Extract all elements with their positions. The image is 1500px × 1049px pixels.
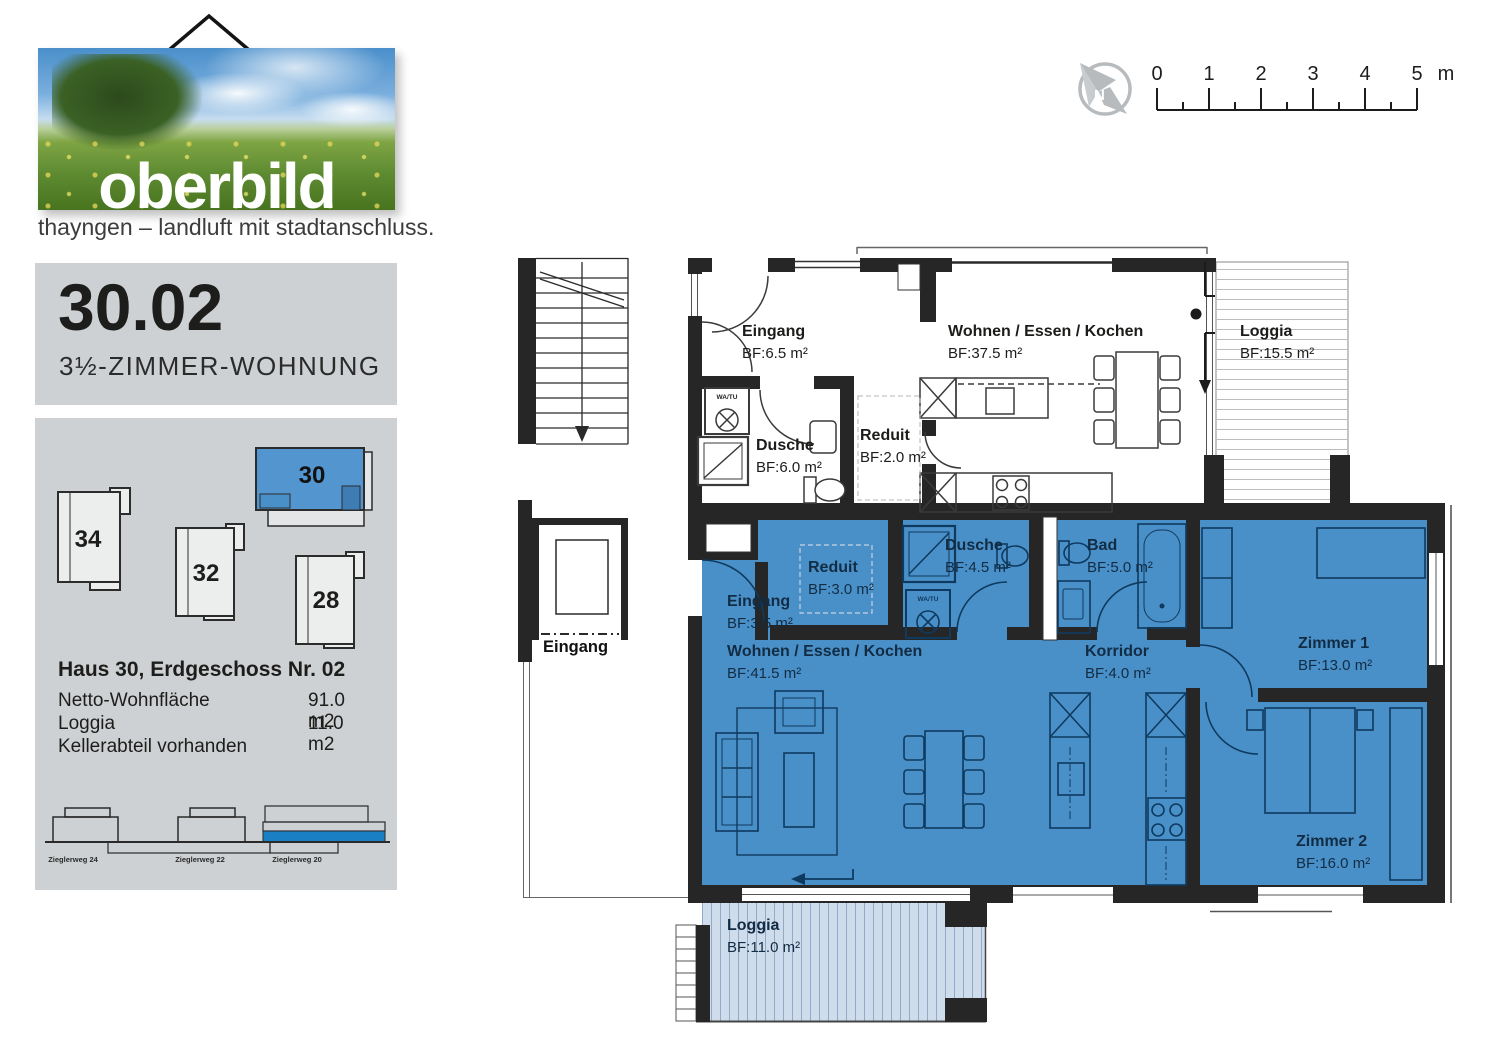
watu-label: WA/TU: [717, 394, 738, 401]
site-building-32: 32: [193, 560, 220, 587]
room-area: BF:11.0 m²: [727, 937, 800, 958]
room-area: BF:6.0 m²: [756, 457, 822, 478]
room-name: Zimmer 2: [1296, 830, 1370, 853]
room-label-upper-eingang: Eingang BF:6.5 m²: [742, 320, 808, 364]
room-label-apt-bad: Bad BF:5.0 m²: [1087, 534, 1153, 578]
upper-loggia: [1204, 262, 1350, 508]
room-area: BF:3.5 m²: [727, 613, 793, 634]
room-area: BF:13.0 m²: [1298, 655, 1372, 676]
compass-icon: N: [1080, 63, 1130, 114]
room-label-apt-wohnen: Wohnen / Essen / Kochen BF:41.5 m²: [727, 640, 922, 684]
room-name: Reduit: [860, 424, 926, 447]
apartment-loggia: [676, 903, 986, 1022]
site-plan: 34 32 28 30: [58, 448, 372, 648]
room-name: Wohnen / Essen / Kochen: [727, 640, 922, 663]
room-label-apt-zimmer1: Zimmer 1 BF:13.0 m²: [1298, 632, 1372, 676]
room-area: BF:37.5 m²: [948, 343, 1143, 364]
stairwell: [536, 258, 628, 444]
scale-tick: 5: [1411, 63, 1422, 85]
site-building-34: 34: [75, 526, 102, 553]
room-name: Wohnen / Essen / Kochen: [948, 320, 1143, 343]
room-name: Dusche: [945, 534, 1011, 557]
room-label-apt-loggia: Loggia BF:11.0 m²: [727, 914, 800, 958]
compass-n: N: [1094, 87, 1105, 104]
site-building-28: 28: [313, 587, 340, 614]
room-area: BF:4.5 m²: [945, 557, 1011, 578]
building-entrance-label: Eingang: [543, 638, 608, 657]
scale-tick: 3: [1307, 63, 1318, 85]
room-name: Dusche: [756, 434, 822, 457]
scale-tick: 0: [1151, 63, 1162, 85]
scale-bar: 0 1 2 3 4 5 m: [1151, 63, 1454, 110]
room-area: BF:5.0 m²: [1087, 557, 1153, 578]
watu-label: WA/TU: [918, 596, 939, 603]
room-label-apt-korridor: Korridor BF:4.0 m²: [1085, 640, 1151, 684]
elevation-label: Zieglerweg 22: [175, 855, 225, 864]
room-label-upper-wohnen: Wohnen / Essen / Kochen BF:37.5 m²: [948, 320, 1143, 364]
room-name: Bad: [1087, 534, 1153, 557]
scale-tick: 1: [1203, 63, 1214, 85]
scale-tick: 4: [1359, 63, 1370, 85]
scale-unit: m: [1438, 63, 1455, 85]
elevation-label: Zieglerweg 20: [272, 855, 322, 864]
room-label-apt-zimmer2: Zimmer 2 BF:16.0 m²: [1296, 830, 1370, 874]
room-area: BF:3.0 m²: [808, 579, 874, 600]
room-name: Reduit: [808, 556, 874, 579]
room-area: BF:16.0 m²: [1296, 853, 1370, 874]
room-label-apt-dusche: Dusche BF:4.5 m²: [945, 534, 1011, 578]
room-label-apt-reduit: Reduit BF:3.0 m²: [808, 556, 874, 600]
room-name: Eingang: [727, 590, 793, 613]
room-area: BF:15.5 m²: [1240, 343, 1314, 364]
room-label-upper-loggia: Loggia BF:15.5 m²: [1240, 320, 1314, 364]
elevation-label: Zieglerweg 24: [48, 855, 98, 864]
room-name: Zimmer 1: [1298, 632, 1372, 655]
plan-drawing: 34 32 28 30 Zieglerweg 24 Zieglerweg 22 …: [0, 0, 1500, 1049]
room-name: Eingang: [742, 320, 808, 343]
scale-tick: 2: [1255, 63, 1266, 85]
room-area: BF:6.5 m²: [742, 343, 808, 364]
elevation-strip: Zieglerweg 24 Zieglerweg 22 Zieglerweg 2…: [45, 806, 390, 864]
section-marker: [1191, 262, 1216, 394]
room-name: Loggia: [727, 914, 800, 937]
room-label-upper-dusche: Dusche BF:6.0 m²: [756, 434, 822, 478]
room-label-apt-eingang: Eingang BF:3.5 m²: [727, 590, 793, 634]
floor-plan-sheet: oberbild thayngen – landluft mit stadtan…: [0, 0, 1500, 1049]
room-name: Korridor: [1085, 640, 1151, 663]
site-building-30: 30: [299, 462, 326, 489]
room-label-upper-reduit: Reduit BF:2.0 m²: [860, 424, 926, 468]
elevator: [532, 518, 628, 640]
room-area: BF:2.0 m²: [860, 447, 926, 468]
room-name: Loggia: [1240, 320, 1314, 343]
room-area: BF:41.5 m²: [727, 663, 922, 684]
room-area: BF:4.0 m²: [1085, 663, 1151, 684]
